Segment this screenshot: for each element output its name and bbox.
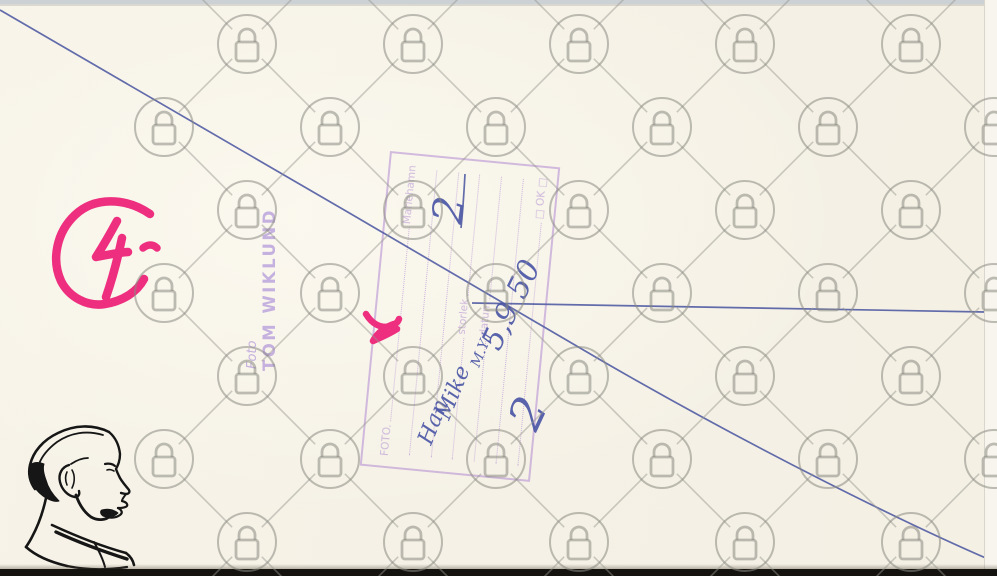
padlock-icon bbox=[633, 430, 691, 488]
padlock-icon bbox=[716, 347, 774, 405]
padlock-icon bbox=[965, 264, 997, 322]
padlock-icon bbox=[550, 15, 608, 73]
watermark-line bbox=[179, 225, 232, 278]
padlock-icon bbox=[550, 181, 608, 239]
watermark-line bbox=[594, 308, 647, 361]
watermark-line bbox=[511, 142, 564, 195]
watermark-line bbox=[677, 59, 730, 112]
padlock-icon bbox=[218, 513, 276, 571]
watermark-line bbox=[428, 225, 481, 278]
watermark-line bbox=[428, 474, 481, 527]
watermark-line bbox=[926, 142, 979, 195]
watermark-line bbox=[760, 225, 813, 278]
watermark-line bbox=[843, 308, 896, 361]
watermark-line bbox=[760, 142, 813, 195]
padlock-icon bbox=[550, 347, 608, 405]
watermark-line bbox=[677, 474, 730, 527]
padlock-icon bbox=[550, 513, 608, 571]
watermark-line bbox=[262, 391, 315, 444]
padlock-icon bbox=[135, 98, 193, 156]
watermark-line bbox=[179, 142, 232, 195]
watermark-line bbox=[511, 225, 564, 278]
padlock-icon bbox=[882, 347, 940, 405]
watermark-line bbox=[262, 225, 315, 278]
watermark-line bbox=[760, 308, 813, 361]
watermark-line bbox=[511, 308, 564, 361]
watermark-line bbox=[843, 142, 896, 195]
watermark-line bbox=[677, 225, 730, 278]
watermark-line bbox=[511, 391, 564, 444]
watermark-line bbox=[428, 142, 481, 195]
watermark-line bbox=[179, 308, 232, 361]
watermark-line bbox=[428, 59, 481, 112]
padlock-icon bbox=[218, 15, 276, 73]
padlock-icon bbox=[135, 264, 193, 322]
padlock-icon bbox=[633, 264, 691, 322]
watermark-line bbox=[345, 142, 398, 195]
padlock-icon bbox=[384, 15, 442, 73]
watermark-line bbox=[345, 308, 398, 361]
watermark-line bbox=[428, 391, 481, 444]
watermark-line bbox=[594, 59, 647, 112]
watermark-line bbox=[594, 474, 647, 527]
watermark-line bbox=[262, 474, 315, 527]
watermark-line bbox=[926, 308, 979, 361]
padlock-icon bbox=[384, 347, 442, 405]
padlock-icon bbox=[135, 430, 193, 488]
watermark-line bbox=[428, 308, 481, 361]
padlock-icon bbox=[965, 98, 997, 156]
watermark-line bbox=[262, 59, 315, 112]
watermark-line bbox=[179, 59, 232, 112]
padlock-icon bbox=[384, 181, 442, 239]
watermark-line bbox=[345, 391, 398, 444]
padlock-icon bbox=[882, 181, 940, 239]
padlock-icon bbox=[301, 264, 359, 322]
watermark-line bbox=[843, 391, 896, 444]
padlock-icon bbox=[799, 430, 857, 488]
photo-verso-scan: Foto TOM WIKLUND FOTO.Mariehamnstorlekda… bbox=[0, 0, 997, 576]
padlock-icon bbox=[467, 98, 525, 156]
padlock-icon bbox=[716, 513, 774, 571]
padlock-icon bbox=[799, 264, 857, 322]
watermark-line bbox=[511, 59, 564, 112]
watermark-line bbox=[926, 225, 979, 278]
watermark-line bbox=[262, 308, 315, 361]
watermark-layer bbox=[0, 0, 997, 576]
watermark-line bbox=[262, 142, 315, 195]
watermark-line bbox=[179, 391, 232, 444]
watermark-line bbox=[760, 474, 813, 527]
watermark-line bbox=[179, 474, 232, 527]
watermark-line bbox=[926, 59, 979, 112]
padlock-icon bbox=[467, 430, 525, 488]
watermark-line bbox=[926, 391, 979, 444]
padlock-icon bbox=[218, 347, 276, 405]
padlock-icon bbox=[301, 430, 359, 488]
padlock-icon bbox=[467, 264, 525, 322]
watermark-line bbox=[843, 225, 896, 278]
watermark-line bbox=[843, 474, 896, 527]
padlock-icon bbox=[965, 430, 997, 488]
padlock-icon bbox=[633, 98, 691, 156]
watermark-line bbox=[677, 391, 730, 444]
watermark-line bbox=[760, 59, 813, 112]
padlock-icon bbox=[384, 513, 442, 571]
padlock-icon bbox=[882, 513, 940, 571]
watermark-line bbox=[926, 474, 979, 527]
watermark-line bbox=[677, 308, 730, 361]
padlock-icon bbox=[799, 98, 857, 156]
watermark-line bbox=[345, 59, 398, 112]
watermark-line bbox=[843, 59, 896, 112]
padlock-icon bbox=[882, 15, 940, 73]
padlock-icon bbox=[301, 98, 359, 156]
watermark-line bbox=[760, 391, 813, 444]
watermark-line bbox=[345, 225, 398, 278]
watermark-line bbox=[677, 142, 730, 195]
padlock-icon bbox=[716, 181, 774, 239]
watermark-line bbox=[511, 474, 564, 527]
padlock-icon bbox=[218, 181, 276, 239]
watermark-line bbox=[345, 474, 398, 527]
padlock-icon bbox=[716, 15, 774, 73]
watermark-line bbox=[594, 142, 647, 195]
watermark-line bbox=[594, 391, 647, 444]
watermark-line bbox=[594, 225, 647, 278]
